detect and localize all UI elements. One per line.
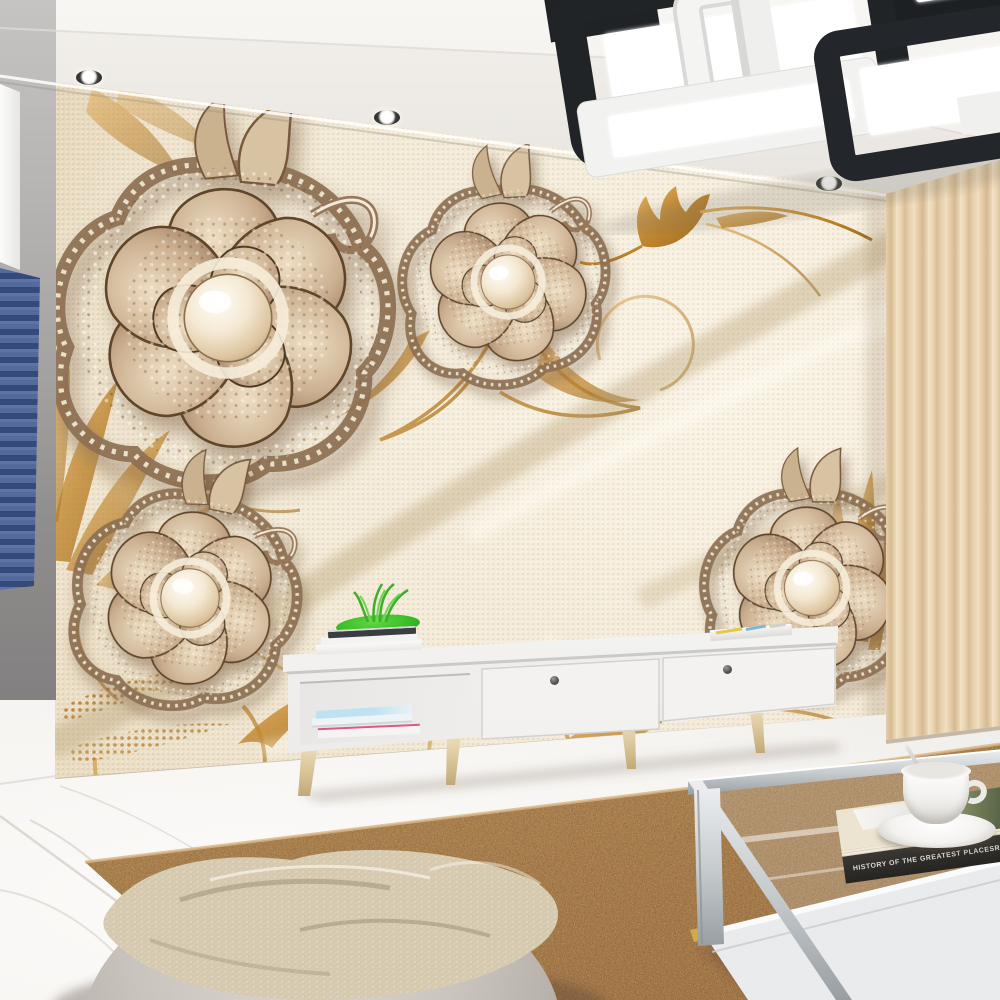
grass-plant [340, 578, 420, 623]
ceiling-light-fixture [520, 0, 1000, 235]
living-room-scene: HISTORY OF THE GREATEST PLACES RICHARD R… [0, 0, 1000, 1000]
pouf-fabric-texture [82, 868, 562, 1000]
tv-stand-leg-2 [442, 735, 466, 785]
drawer-knob-left[interactable] [550, 676, 559, 685]
book-spine-author: RICHARD ROCK [994, 837, 1000, 852]
pouf [82, 868, 562, 1000]
cup-rim [901, 762, 971, 780]
drawer-knob-right[interactable] [723, 665, 732, 674]
